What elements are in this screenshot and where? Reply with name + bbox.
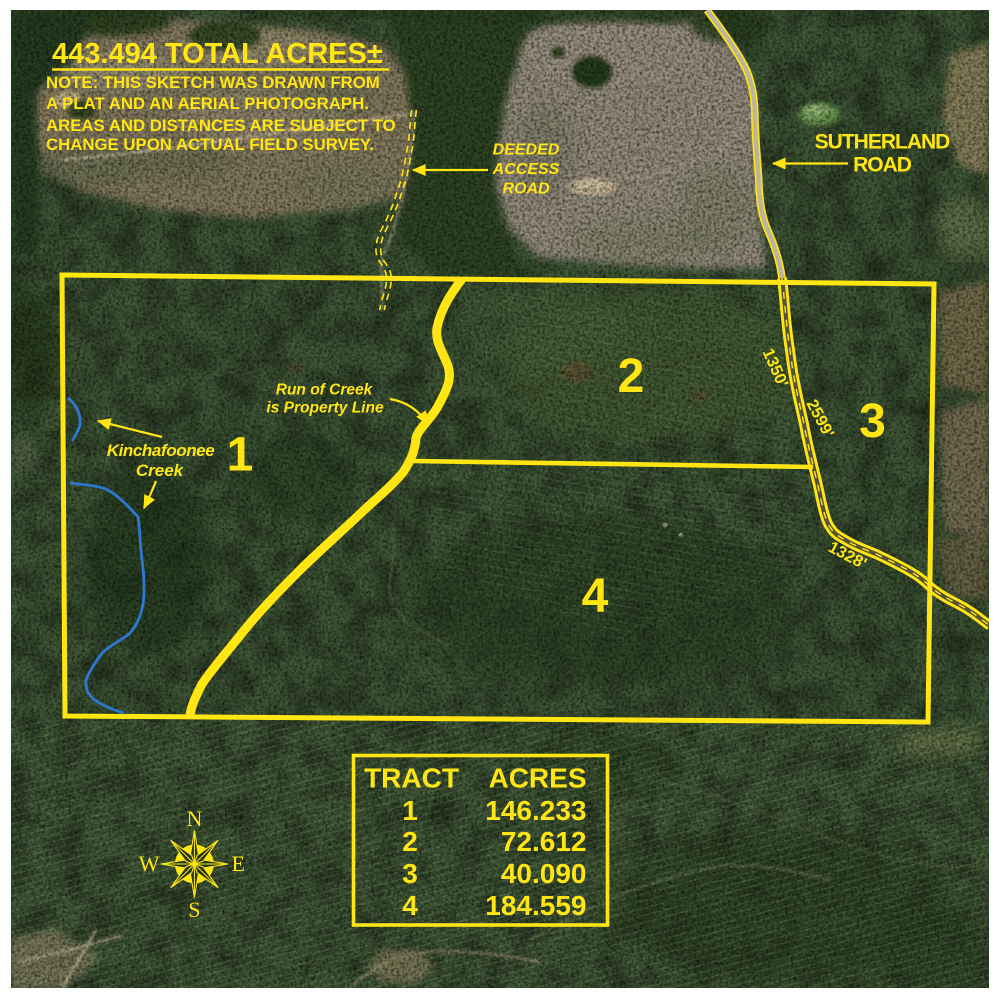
svg-text:Kinchafoonee: Kinchafoonee — [107, 441, 215, 460]
svg-text:TRACT: TRACT — [364, 763, 459, 794]
svg-text:2: 2 — [402, 826, 418, 857]
svg-text:is Property Line: is Property Line — [266, 400, 384, 417]
svg-text:4: 4 — [402, 890, 418, 921]
svg-text:146.233: 146.233 — [485, 795, 586, 826]
svg-text:443.494 TOTAL ACRES±: 443.494 TOTAL ACRES± — [52, 38, 383, 70]
svg-text:3: 3 — [859, 395, 886, 448]
svg-text:3: 3 — [402, 858, 418, 889]
svg-text:SUTHERLAND: SUTHERLAND — [815, 131, 950, 154]
svg-text:N: N — [186, 806, 202, 831]
svg-text:1: 1 — [227, 429, 254, 482]
svg-text:1: 1 — [402, 795, 418, 826]
svg-text:ROAD: ROAD — [502, 181, 550, 198]
svg-text:40.090: 40.090 — [501, 858, 587, 889]
svg-text:NOTE: THIS SKETCH WAS DRAWN FR: NOTE: THIS SKETCH WAS DRAWN FROM — [46, 73, 380, 92]
svg-text:A PLAT AND AN AERIAL PHOTOGRAP: A PLAT AND AN AERIAL PHOTOGRAPH. — [46, 94, 369, 113]
svg-text:CHANGE UPON ACTUAL FIELD SURVE: CHANGE UPON ACTUAL FIELD SURVEY. — [46, 135, 374, 154]
svg-text:72.612: 72.612 — [501, 826, 587, 857]
svg-text:DEEDED: DEEDED — [493, 142, 560, 159]
svg-text:E: E — [231, 851, 244, 876]
svg-text:Run of Creek: Run of Creek — [276, 382, 374, 399]
svg-text:ROAD: ROAD — [853, 154, 912, 177]
svg-text:W: W — [139, 851, 160, 876]
svg-text:ACRES: ACRES — [488, 763, 586, 794]
svg-text:AREAS AND DISTANCES ARE SUBJEC: AREAS AND DISTANCES ARE SUBJECT TO — [46, 116, 396, 135]
svg-text:ACCESS: ACCESS — [492, 161, 560, 178]
svg-text:2: 2 — [618, 350, 645, 403]
svg-text:Creek: Creek — [136, 461, 185, 480]
svg-text:S: S — [188, 897, 200, 922]
svg-text:184.559: 184.559 — [485, 890, 586, 921]
svg-text:4: 4 — [582, 570, 609, 623]
